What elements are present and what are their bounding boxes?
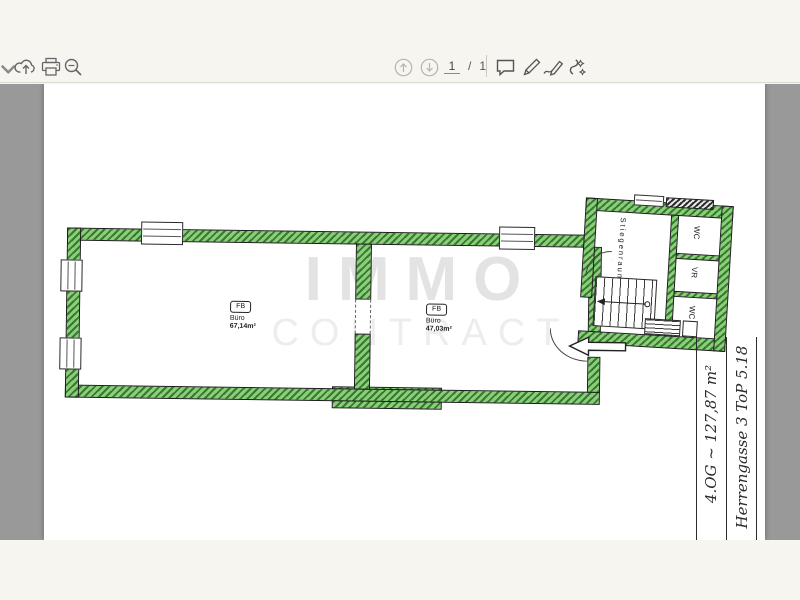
toolbar: 1 / 1 [0,0,800,83]
comment-tool-button[interactable] [492,54,518,80]
printer-icon [40,57,62,77]
window-top-left [141,222,183,246]
arrow-down-circle-icon [419,57,440,78]
window-top-right [499,227,535,251]
page-navigation: 1 / 1 [444,52,486,80]
room-area: 67,14m² [230,323,310,332]
comment-bubble-icon [495,58,516,77]
arrow-up-circle-icon [393,57,414,78]
wc-top-label: WC [692,226,702,240]
vr-label: VR [689,267,699,279]
previous-page-button[interactable] [390,54,416,80]
window-left-lower [59,337,81,369]
pen-icon [521,57,542,78]
signature-icon [542,57,565,78]
wall-divider-upper [355,244,372,300]
draw-tool-button[interactable] [563,54,589,80]
next-page-button[interactable] [416,54,442,80]
draw-sparkle-icon [565,57,588,78]
annotation-rule-1 [696,337,697,540]
room-tag: FB [426,303,447,315]
floor-plan: FB Büro 67,14m² FB Büro 47,03m² [41,84,768,540]
room-label-right: FB Büro 47,03m² [426,297,506,334]
pdf-viewer-window: 1 / 1 [0,0,800,600]
radiator [644,318,681,336]
wall-divider-lower [354,334,371,390]
shaft-box [682,320,698,337]
wc-bottom-label: WC [687,306,697,320]
annotation-rule-2 [726,337,727,540]
cloud-download-icon [14,57,38,77]
document-viewer[interactable]: IMMO CONTRACT [0,84,800,540]
magnifier-icon [63,57,84,78]
download-button[interactable] [13,54,39,80]
room-label-left: FB Büro 67,14m² [230,295,310,332]
stairblock-top-window [634,194,665,207]
zoom-button[interactable] [60,54,86,80]
stairblock-wall-wc [676,253,720,262]
interior-door-opening [355,300,371,334]
page-background-bottom [0,540,800,600]
entrance-arrow-icon [567,334,629,358]
wall-right-lower [587,357,601,393]
wall-left [65,227,81,397]
document-page: IMMO CONTRACT [44,84,765,540]
stairblock-wall-vr [673,291,717,300]
page-separator: / [468,59,471,73]
room-area: 47,03m² [426,325,506,334]
window-left-upper [60,259,82,291]
handwritten-area: 4.OG ~ 127,87 m² [702,324,722,540]
handwritten-address: Herrengasse 3 ToP 5.18 [733,327,753,540]
annotation-rule-3 [756,337,757,540]
toolbar-divider [486,55,487,77]
room-tag: FB [230,301,251,313]
page-number-input[interactable]: 1 [444,59,460,74]
